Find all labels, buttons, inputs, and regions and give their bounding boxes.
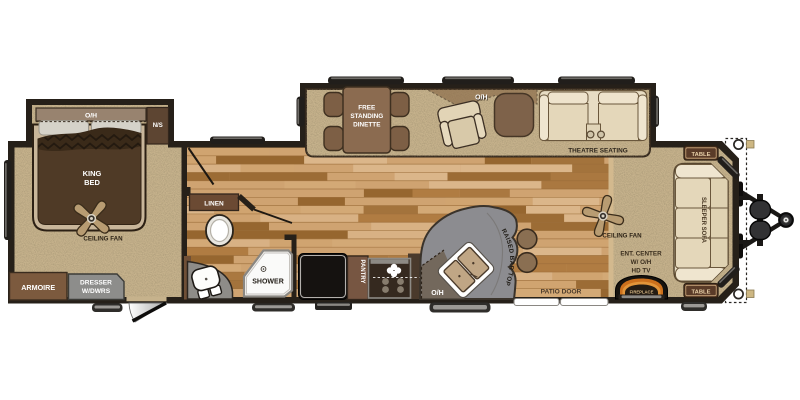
svg-text:PATIO DOOR: PATIO DOOR [541, 289, 582, 296]
svg-text:O/H: O/H [85, 112, 97, 119]
svg-text:THEATRE SEATING: THEATRE SEATING [568, 148, 627, 155]
svg-text:SHOWER: SHOWER [252, 279, 284, 286]
svg-text:N/S: N/S [153, 123, 163, 129]
svg-text:ENT. CENTER: ENT. CENTER [620, 251, 662, 258]
svg-text:LINEN: LINEN [204, 201, 224, 208]
svg-text:O/H: O/H [475, 95, 487, 102]
svg-text:TABLE: TABLE [692, 289, 711, 295]
svg-text:TABLE: TABLE [692, 152, 711, 158]
svg-text:STANDING: STANDING [350, 113, 383, 120]
svg-text:W/DWRS: W/DWRS [82, 288, 111, 295]
svg-text:O/H: O/H [431, 290, 443, 297]
svg-text:PANTRY: PANTRY [359, 260, 365, 284]
svg-text:FREE: FREE [358, 105, 376, 112]
svg-text:CEILING FAN: CEILING FAN [602, 233, 642, 240]
svg-text:W/ O/H: W/ O/H [631, 259, 652, 266]
svg-text:DINETTE: DINETTE [353, 122, 381, 129]
svg-text:KING: KING [83, 169, 102, 178]
svg-text:SLEEPER SOFA: SLEEPER SOFA [700, 197, 706, 244]
svg-text:DRESSER: DRESSER [80, 280, 112, 287]
svg-text:HD TV: HD TV [632, 268, 652, 275]
svg-text:CEILING FAN: CEILING FAN [83, 236, 123, 243]
svg-text:BED: BED [84, 178, 100, 187]
svg-text:ARMOIRE: ARMOIRE [21, 283, 55, 292]
svg-text:FIREPLACE: FIREPLACE [630, 289, 654, 294]
